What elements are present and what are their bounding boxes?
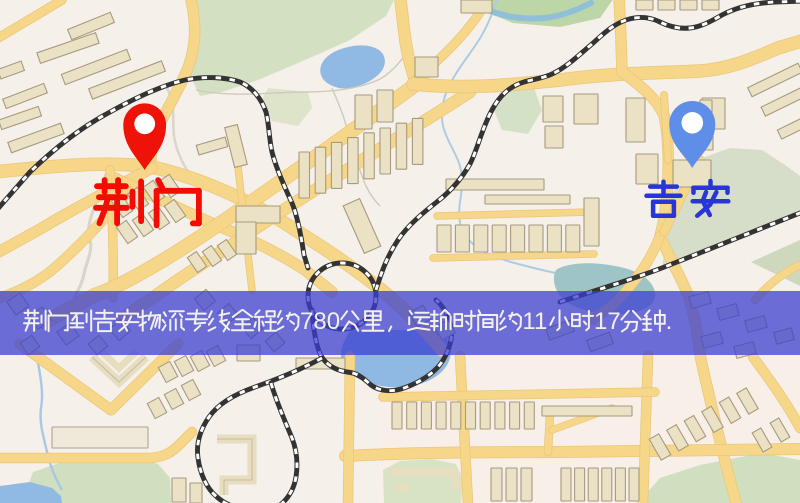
svg-text:17: 17 [594,308,621,335]
svg-text:780: 780 [300,308,340,335]
svg-text:.: . [666,308,673,335]
svg-text:11: 11 [522,308,547,335]
